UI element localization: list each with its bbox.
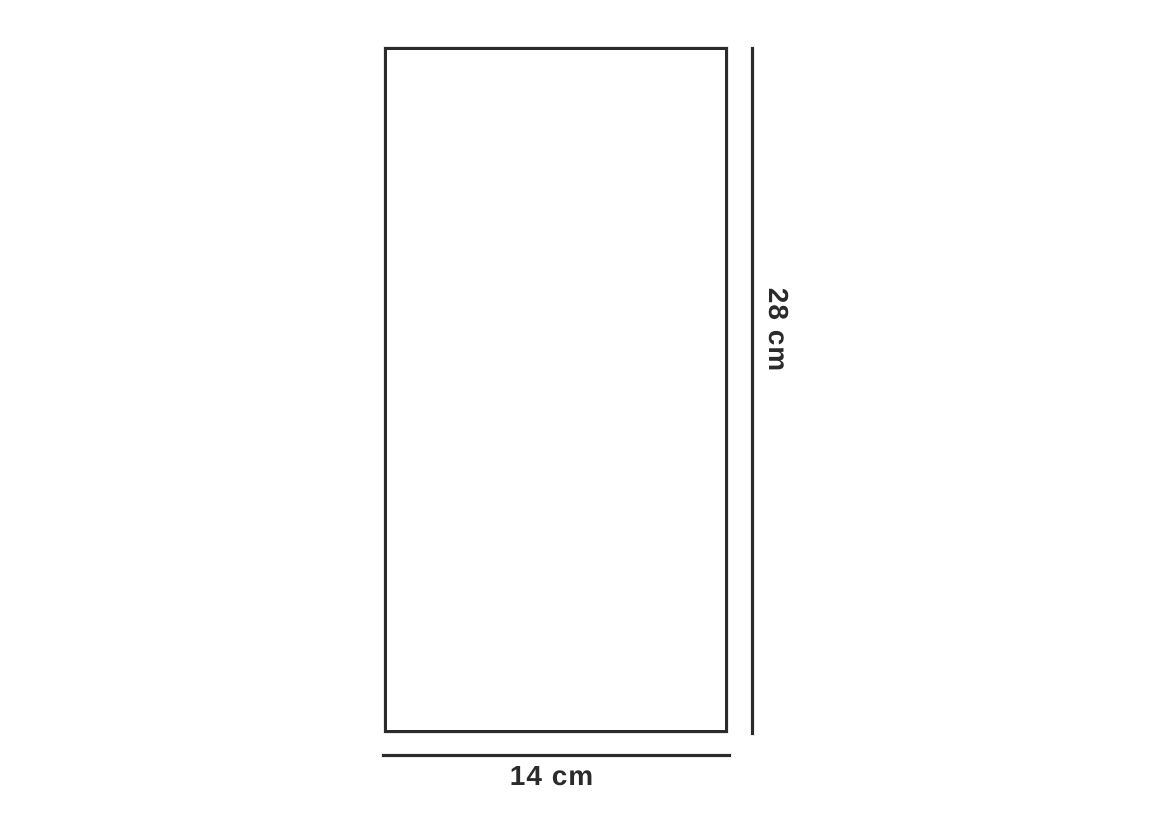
diagram-canvas: 28 cm 14 cm [0,0,1169,817]
width-dimension-line [382,754,731,757]
width-dimension-label: 14 cm [510,762,594,790]
height-dimension-line [751,47,754,735]
rectangle-shape [384,47,728,733]
height-dimension-label: 28 cm [764,288,792,372]
